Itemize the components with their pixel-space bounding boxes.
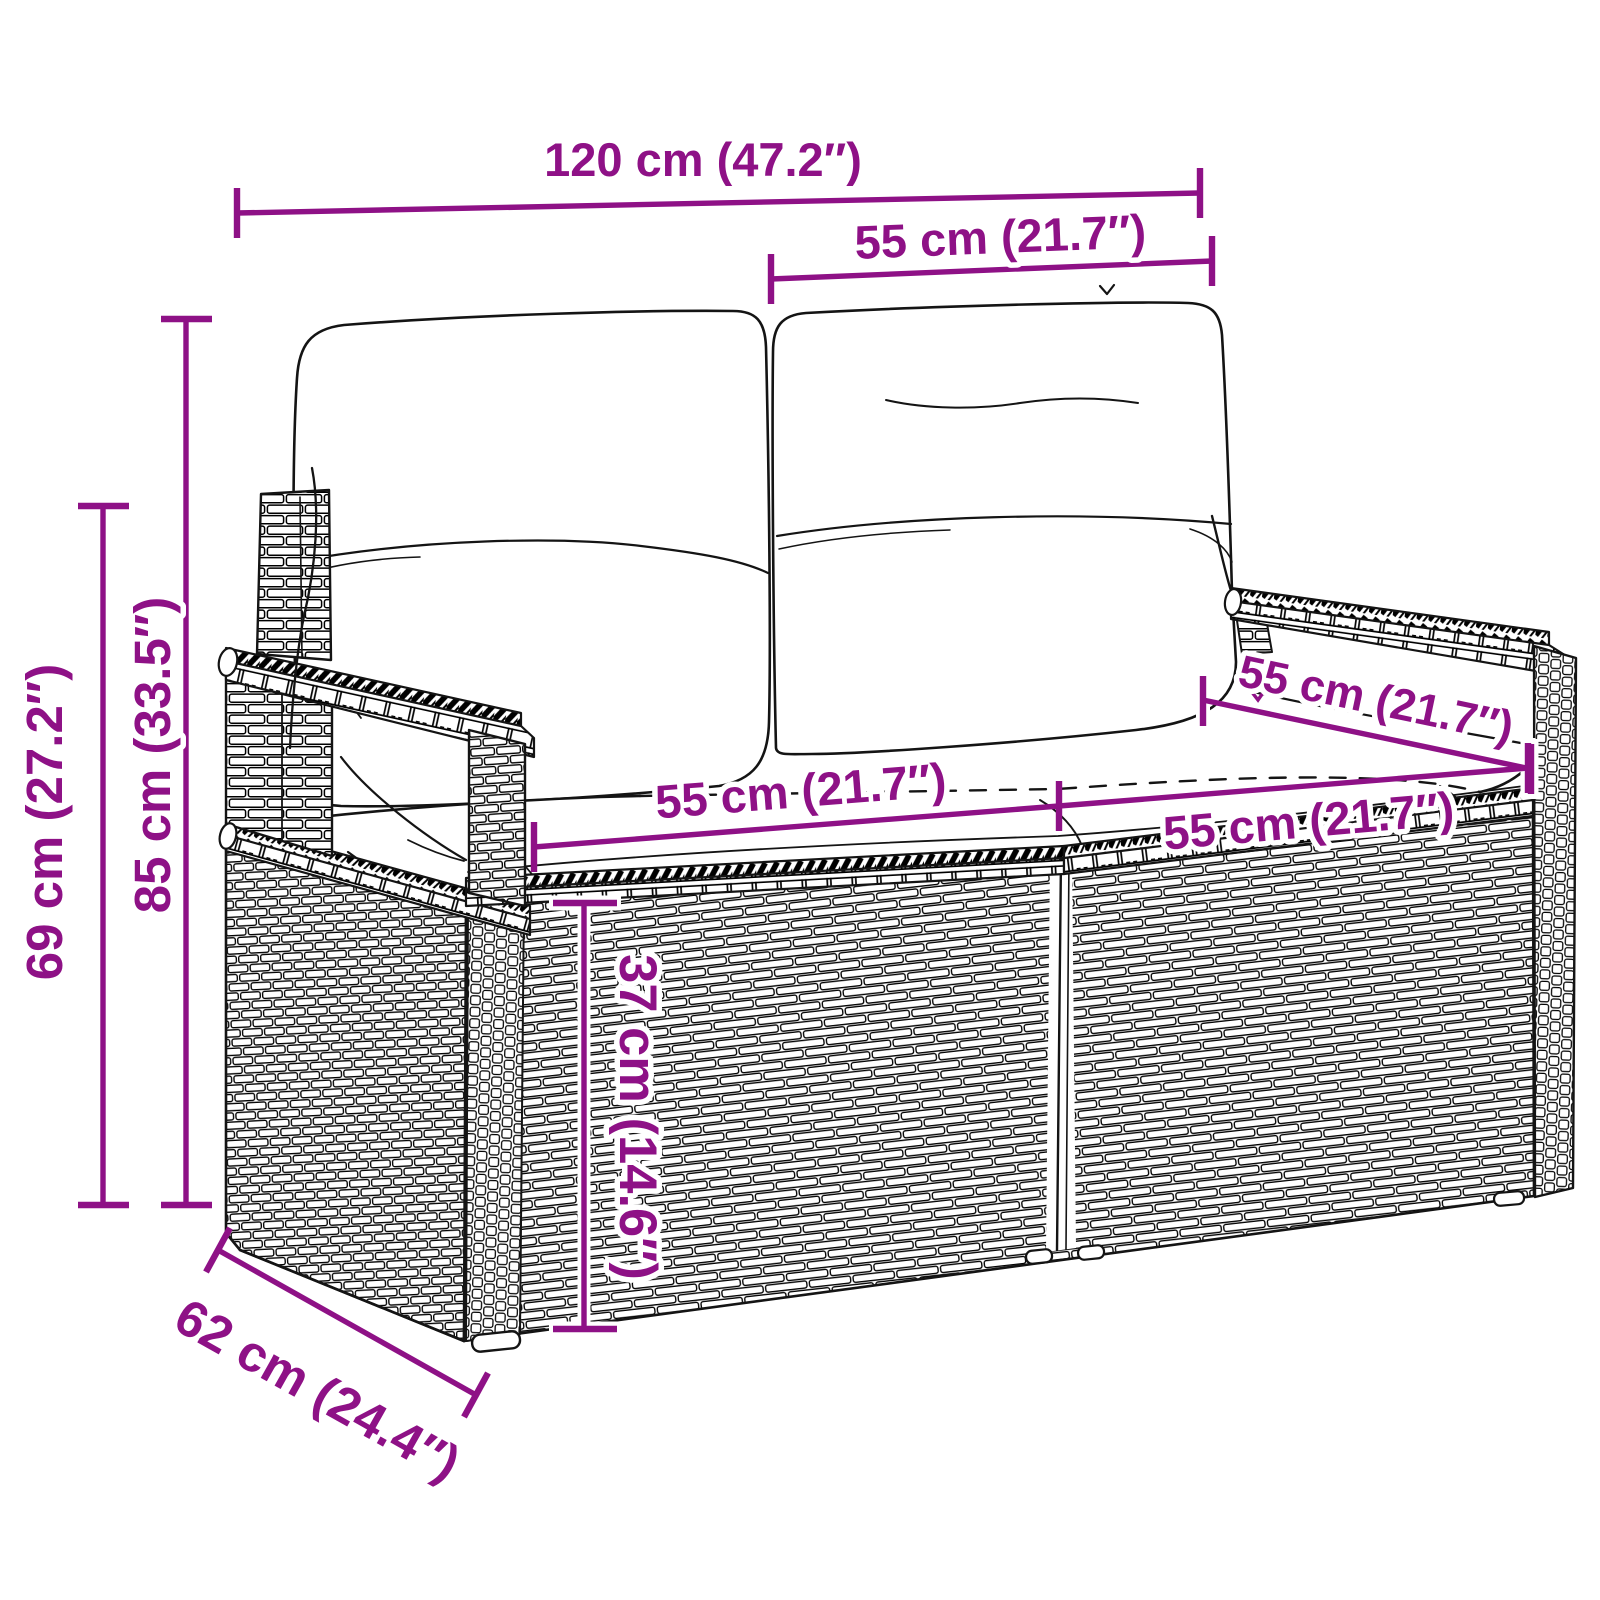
svg-text:85 cm (33.5″): 85 cm (33.5″) bbox=[124, 597, 181, 913]
svg-text:69 cm (27.2″): 69 cm (27.2″) bbox=[16, 664, 73, 980]
svg-text:37 cm (14.6″): 37 cm (14.6″) bbox=[608, 954, 667, 1280]
svg-text:120 cm (47.2″): 120 cm (47.2″) bbox=[544, 133, 862, 186]
